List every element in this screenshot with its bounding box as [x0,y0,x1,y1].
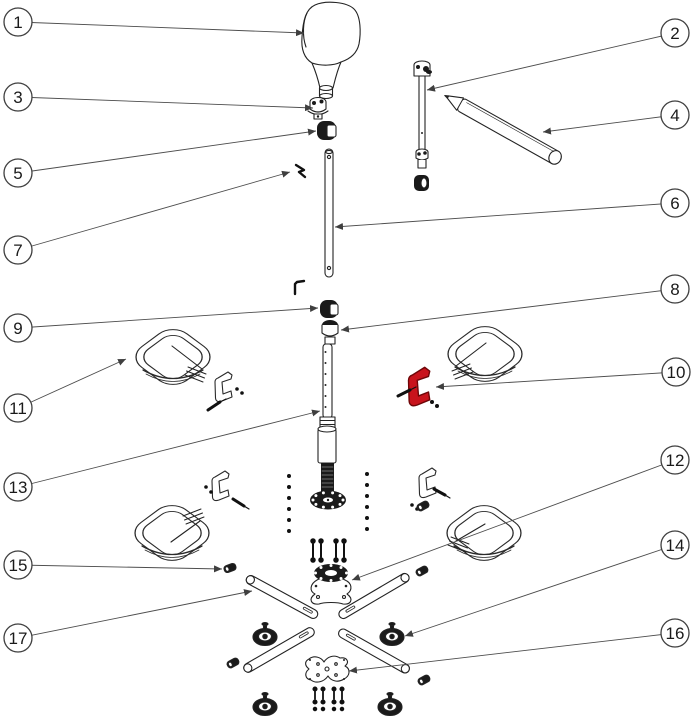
seat-pad-part [440,321,531,388]
leader-line-15 [18,565,222,569]
callout-number: 17 [9,629,28,648]
leader-line-2 [427,33,675,90]
ferrule-part [226,657,240,669]
pull-pin-assembly-part [414,61,432,191]
callout-balloon-5[interactable]: 5 [4,159,32,187]
callout-number: 12 [666,451,685,470]
leader-line-4 [543,115,675,132]
callout-balloon-16[interactable]: 16 [661,619,689,647]
caster-wheel-part [378,693,402,716]
caster-wheel-part [380,623,404,646]
ferrule-part [417,674,431,686]
bracket-clip-part [204,471,249,509]
callout-number: 11 [9,399,27,418]
ferrule-part [416,500,430,512]
leader-line-3 [18,97,313,108]
bracket-clip-part [208,372,244,410]
base-leg-tube-part [242,626,316,674]
pole-cap-part [320,300,338,318]
callout-number: 9 [13,319,22,338]
seat-pad-part [127,500,218,567]
callout-number: 5 [13,164,22,183]
callout-number: 1 [13,13,22,32]
callout-number: 13 [9,478,28,497]
callout-number: 15 [9,556,28,575]
leader-line-17 [18,591,252,638]
callout-balloon-11[interactable]: 11 [4,394,32,422]
parts-layer [127,2,564,715]
callout-balloon-14[interactable]: 14 [661,531,689,559]
bracket-clip-part [410,468,450,511]
pole-top-connector-part [322,320,338,344]
ferrule-part [415,565,429,577]
callout-balloon-10[interactable]: 10 [662,358,690,386]
angle-clip-part [295,281,304,294]
callout-balloon-3[interactable]: 3 [4,83,32,111]
spring-clip-part [296,165,305,177]
leader-line-14 [405,545,675,636]
hand-lever-part [441,89,563,166]
leader-line-13 [18,411,320,487]
leader-line-8 [341,289,675,330]
leader-line-9 [18,308,318,328]
callout-balloon-13[interactable]: 13 [4,473,32,501]
parts-diagram-page: 1234567891011121314151617 [0,0,693,720]
diagram-canvas: 1234567891011121314151617 [0,0,693,720]
leader-line-11 [18,359,126,408]
callout-number: 8 [670,280,679,299]
callout-balloon-12[interactable]: 12 [661,446,689,474]
callout-balloon-7[interactable]: 7 [4,236,32,264]
callout-number: 3 [13,88,22,107]
callout-number: 2 [670,24,679,43]
leader-line-7 [18,172,290,250]
caster-wheel-part [253,623,277,646]
base-cross-plate-part [306,656,349,682]
callout-balloon-8[interactable]: 8 [661,275,689,303]
bottom-screw-set-part [313,687,344,711]
leader-line-1 [18,22,304,33]
callout-number: 4 [670,106,679,125]
callout-number: 6 [670,194,679,213]
callout-number: 7 [13,241,22,260]
telescoping-pole-part [310,344,346,510]
callout-number: 14 [666,536,685,555]
seat-pad-part [128,324,219,391]
upper-tube-cap-part [317,121,336,140]
leader-line-5 [18,131,316,173]
callout-number: 16 [666,624,685,643]
seat-pad-part [439,500,530,567]
callout-balloon-4[interactable]: 4 [661,101,689,129]
callout-number: 10 [667,363,686,382]
seat-knob-part [302,2,360,98]
base-leg-tube-part [245,574,320,620]
highlighted-bracket-part[interactable] [398,367,439,408]
callout-balloon-6[interactable]: 6 [661,189,689,217]
leader-line-12 [352,460,675,580]
callout-balloon-2[interactable]: 2 [661,19,689,47]
ferrule-part [223,563,237,574]
callout-balloon-15[interactable]: 15 [4,551,32,579]
leader-line-6 [335,203,675,227]
callout-balloon-17[interactable]: 17 [4,624,32,652]
callout-balloon-9[interactable]: 9 [4,314,32,342]
upper-tube-part [325,149,333,277]
base-hub-part [311,564,351,604]
bolt-set-part [311,539,346,562]
callout-balloon-1[interactable]: 1 [4,8,32,36]
caster-wheel-part [253,693,277,716]
